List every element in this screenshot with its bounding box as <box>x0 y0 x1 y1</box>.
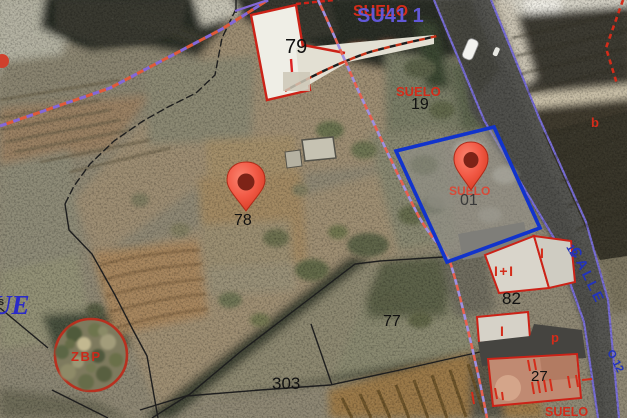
svg-text:b: b <box>591 115 599 130</box>
svg-text:01: 01 <box>460 192 478 209</box>
svg-text:19: 19 <box>411 96 429 113</box>
svg-text:ZBP: ZBP <box>71 349 102 364</box>
svg-text:I: I <box>500 323 504 339</box>
svg-text:I+I: I+I <box>494 263 514 279</box>
svg-text:SUELO: SUELO <box>545 405 588 418</box>
svg-text:SU41 1: SU41 1 <box>357 5 424 27</box>
svg-text:79: 79 <box>285 36 307 58</box>
svg-text:303: 303 <box>272 374 300 393</box>
svg-text:I: I <box>540 245 544 261</box>
svg-text:p: p <box>551 330 559 345</box>
svg-text:78: 78 <box>234 212 252 229</box>
svg-text:77: 77 <box>383 313 401 330</box>
svg-text:82: 82 <box>502 289 521 308</box>
svg-text:UE: UE <box>0 290 30 320</box>
